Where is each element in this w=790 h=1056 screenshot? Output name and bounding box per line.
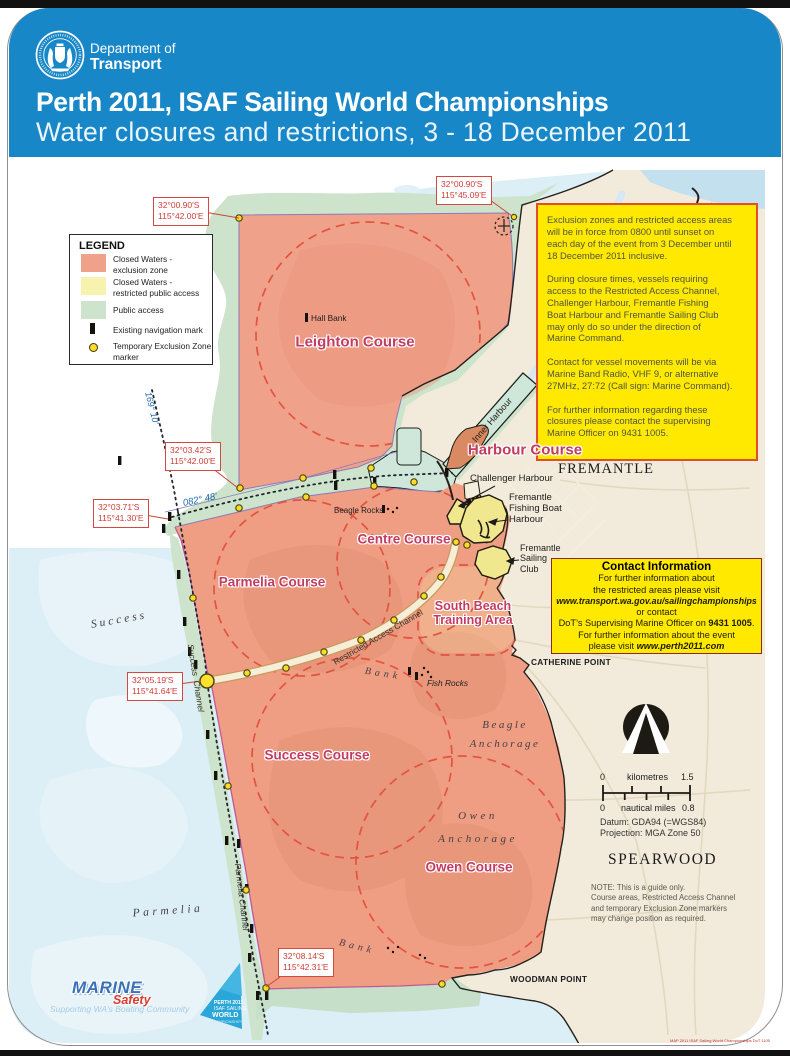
svg-text:WORLD: WORLD <box>212 1012 238 1019</box>
svg-text:CHAMPIONSHIPS: CHAMPIONSHIPS <box>210 1019 244 1024</box>
